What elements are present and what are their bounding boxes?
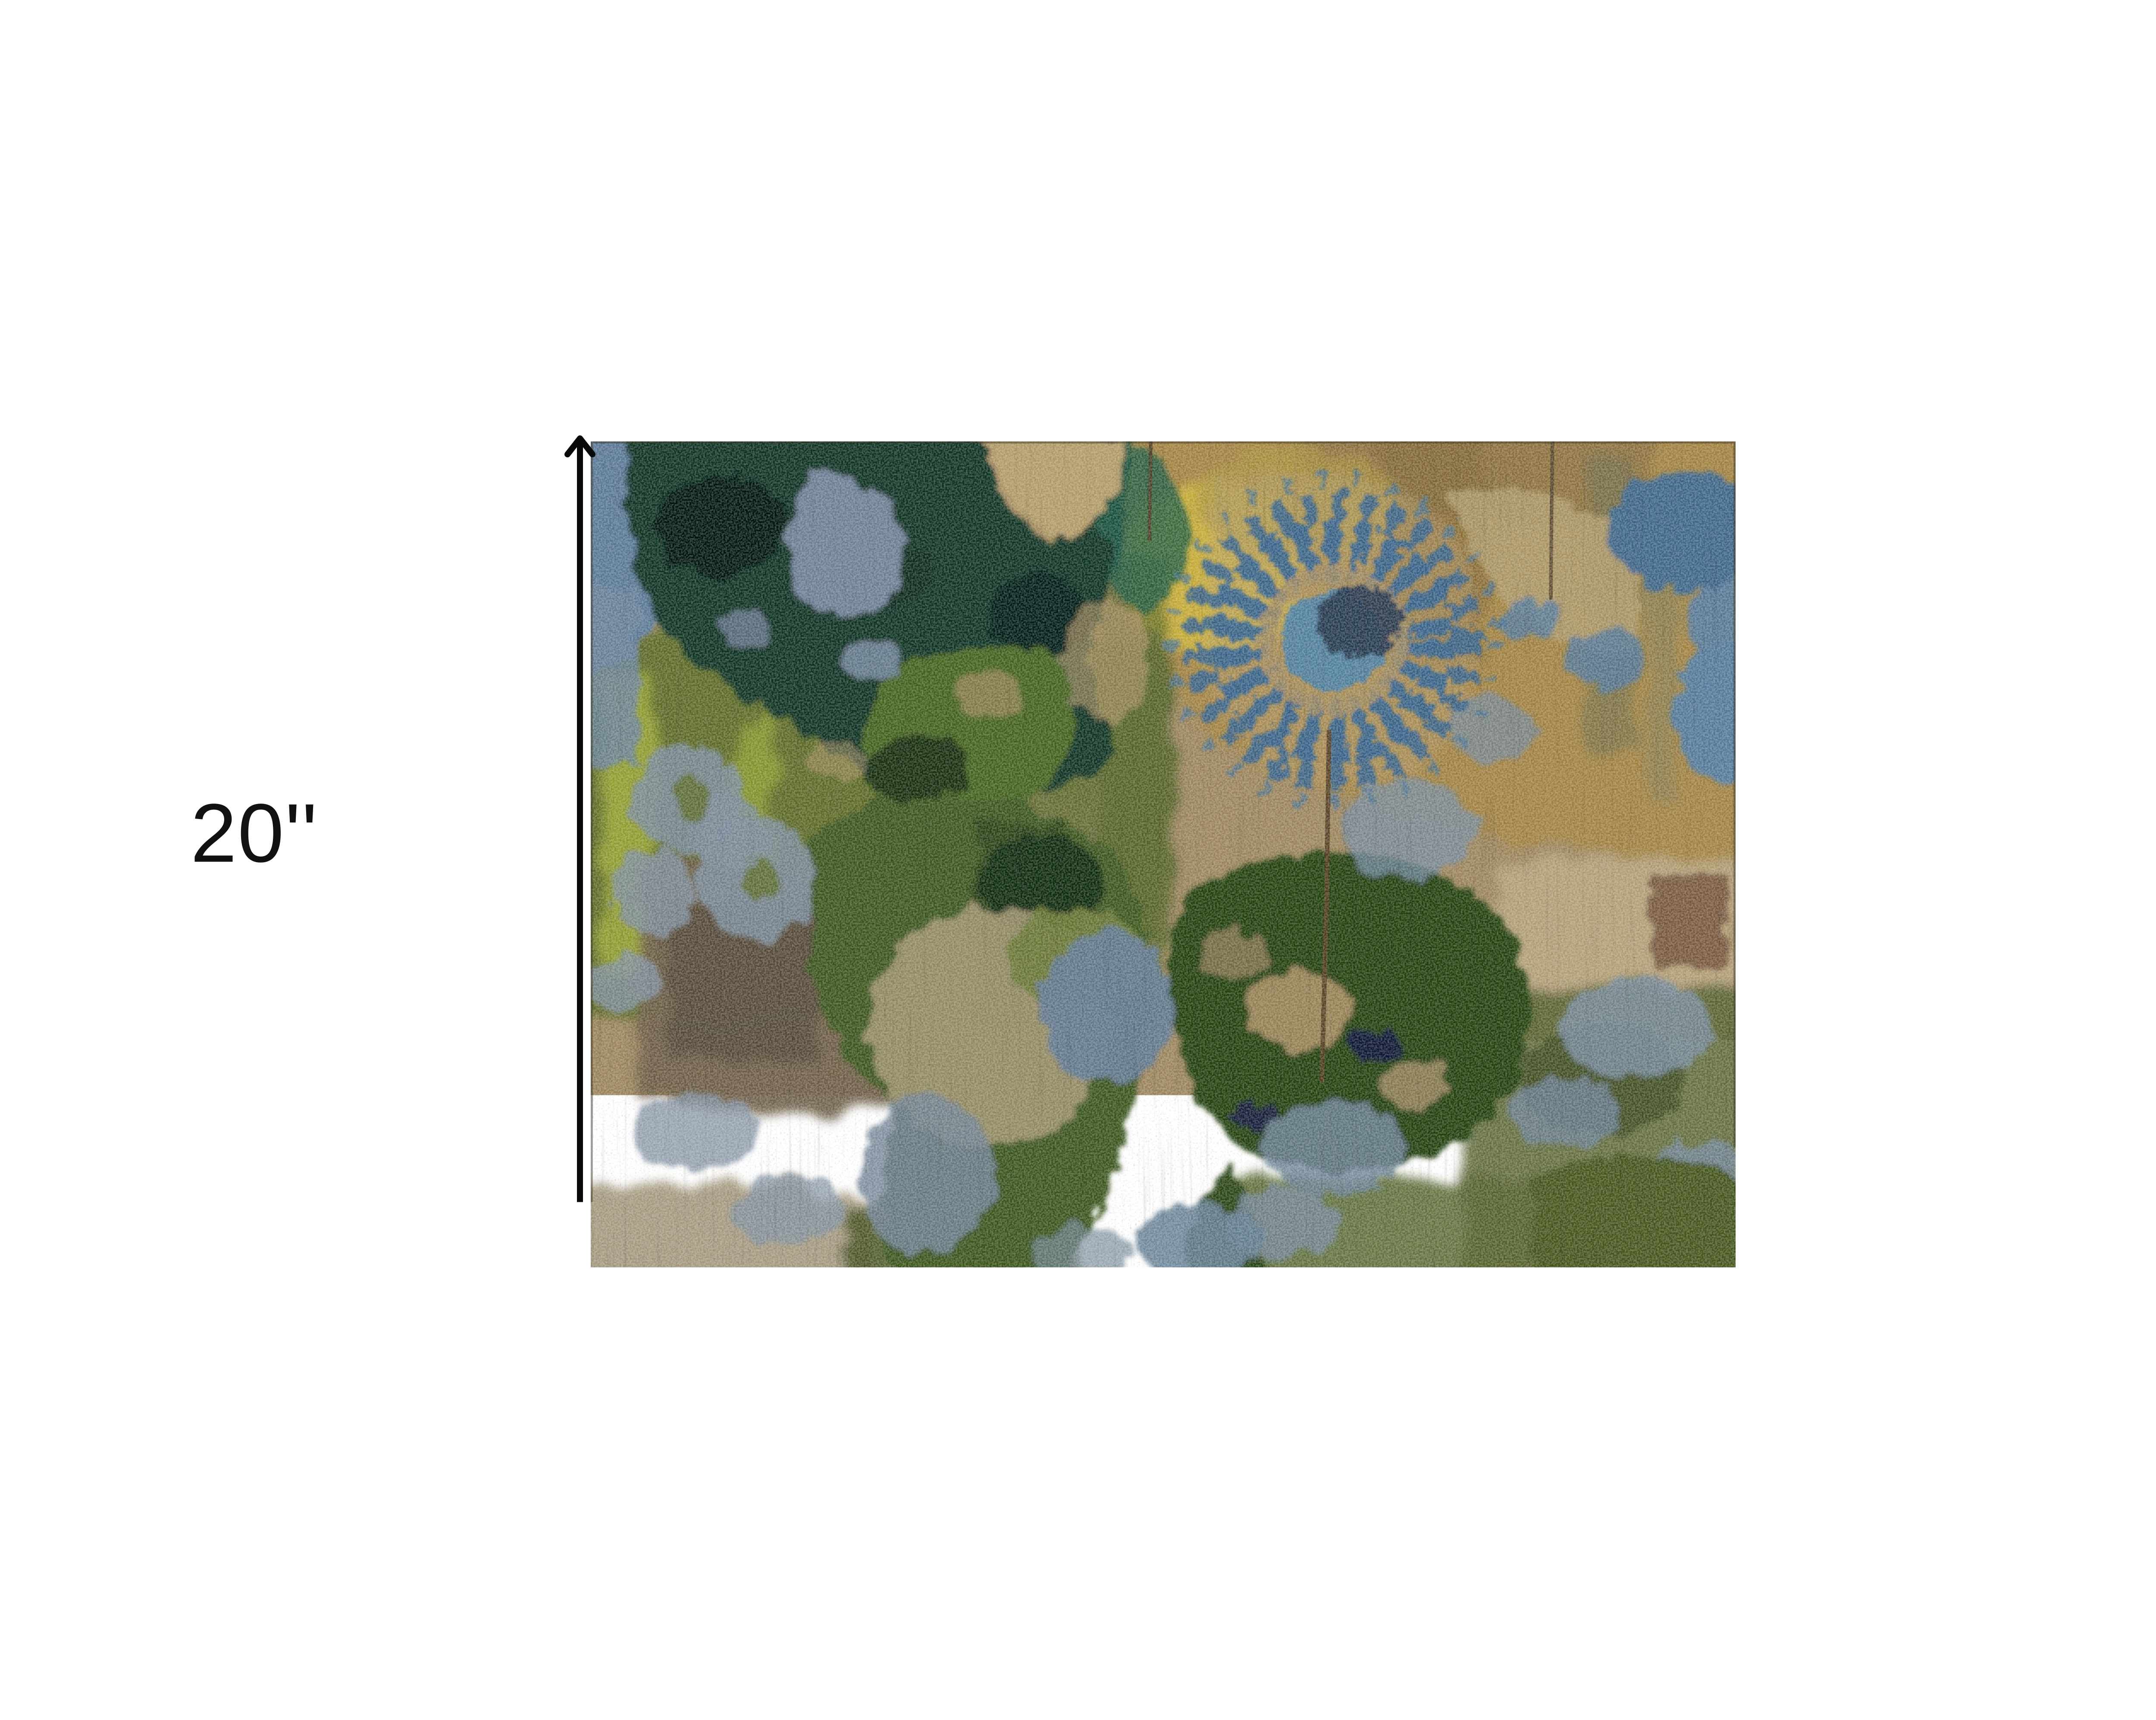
svg-text:30'': 30'' <box>1159 1323 1286 1417</box>
svg-text:20'': 20'' <box>191 786 318 879</box>
